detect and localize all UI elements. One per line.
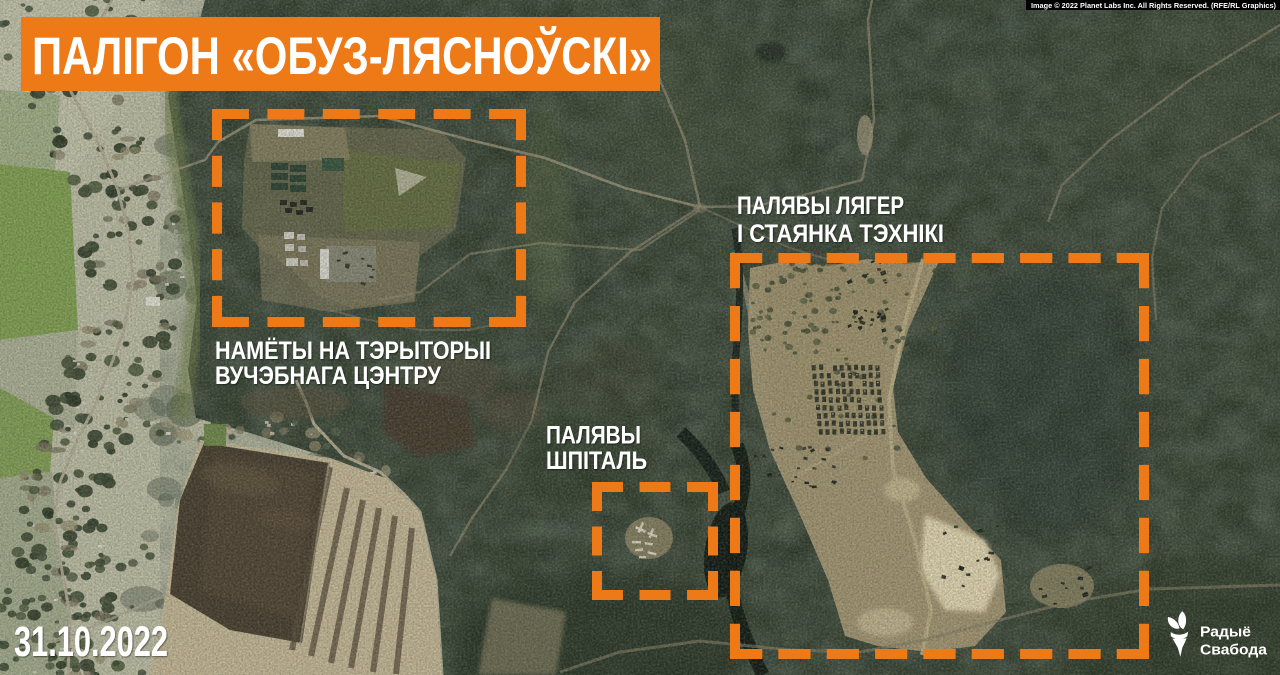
svg-text:І СТАЯНКА ТЭХНІКІ: І СТАЯНКА ТЭХНІКІ (737, 220, 944, 248)
svg-text:НАМЁТЫ НА ТЭРЫТОРЫІ: НАМЁТЫ НА ТЭРЫТОРЫІ (215, 337, 491, 365)
svg-text:ПАЛІГОН «ОБУЗ-ЛЯСНОЎСКІ»: ПАЛІГОН «ОБУЗ-ЛЯСНОЎСКІ» (32, 25, 652, 86)
svg-text:Свабода: Свабода (1200, 643, 1268, 659)
svg-text:Image © 2022 Planet Labs Inc.: Image © 2022 Planet Labs Inc. All Rights… (1031, 1, 1276, 10)
svg-text:ВУЧЭБНАГА ЦЭНТРУ: ВУЧЭБНАГА ЦЭНТРУ (215, 362, 441, 390)
svg-text:Радыё: Радыё (1200, 625, 1251, 641)
svg-text:ПАЛЯВЫ ЛЯГЕР: ПАЛЯВЫ ЛЯГЕР (737, 192, 904, 220)
svg-text:ПАЛЯВЫ: ПАЛЯВЫ (546, 422, 641, 450)
svg-text:31.10.2022: 31.10.2022 (14, 618, 168, 666)
svg-text:ШПІТАЛЬ: ШПІТАЛЬ (546, 447, 647, 475)
